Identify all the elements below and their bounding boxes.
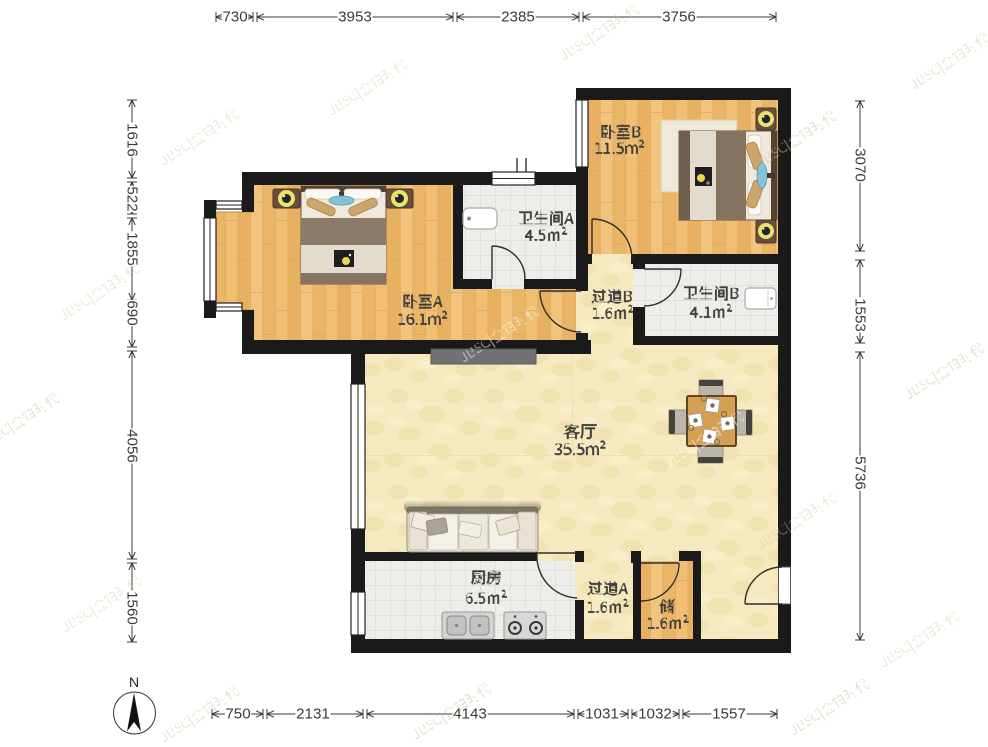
svg-text:1557: 1557 bbox=[712, 706, 746, 723]
svg-text:5736: 5736 bbox=[852, 456, 869, 490]
svg-text:1616: 1616 bbox=[124, 123, 141, 157]
svg-text:4056: 4056 bbox=[124, 429, 141, 463]
svg-text:750: 750 bbox=[225, 706, 250, 723]
svg-text:1032: 1032 bbox=[638, 706, 672, 723]
svg-text:1855: 1855 bbox=[124, 232, 141, 266]
svg-text:3953: 3953 bbox=[338, 9, 372, 26]
svg-text:3070: 3070 bbox=[852, 148, 869, 182]
svg-text:1560: 1560 bbox=[124, 591, 141, 625]
svg-text:522: 522 bbox=[124, 186, 141, 211]
svg-text:3756: 3756 bbox=[662, 9, 696, 26]
svg-text:N: N bbox=[129, 674, 139, 690]
svg-text:1553: 1553 bbox=[852, 298, 869, 332]
svg-text:730: 730 bbox=[222, 9, 247, 26]
svg-text:1031: 1031 bbox=[585, 706, 619, 723]
svg-text:4143: 4143 bbox=[453, 706, 487, 723]
svg-text:690: 690 bbox=[124, 300, 141, 325]
svg-text:2131: 2131 bbox=[296, 706, 330, 723]
svg-text:2385: 2385 bbox=[501, 9, 535, 26]
